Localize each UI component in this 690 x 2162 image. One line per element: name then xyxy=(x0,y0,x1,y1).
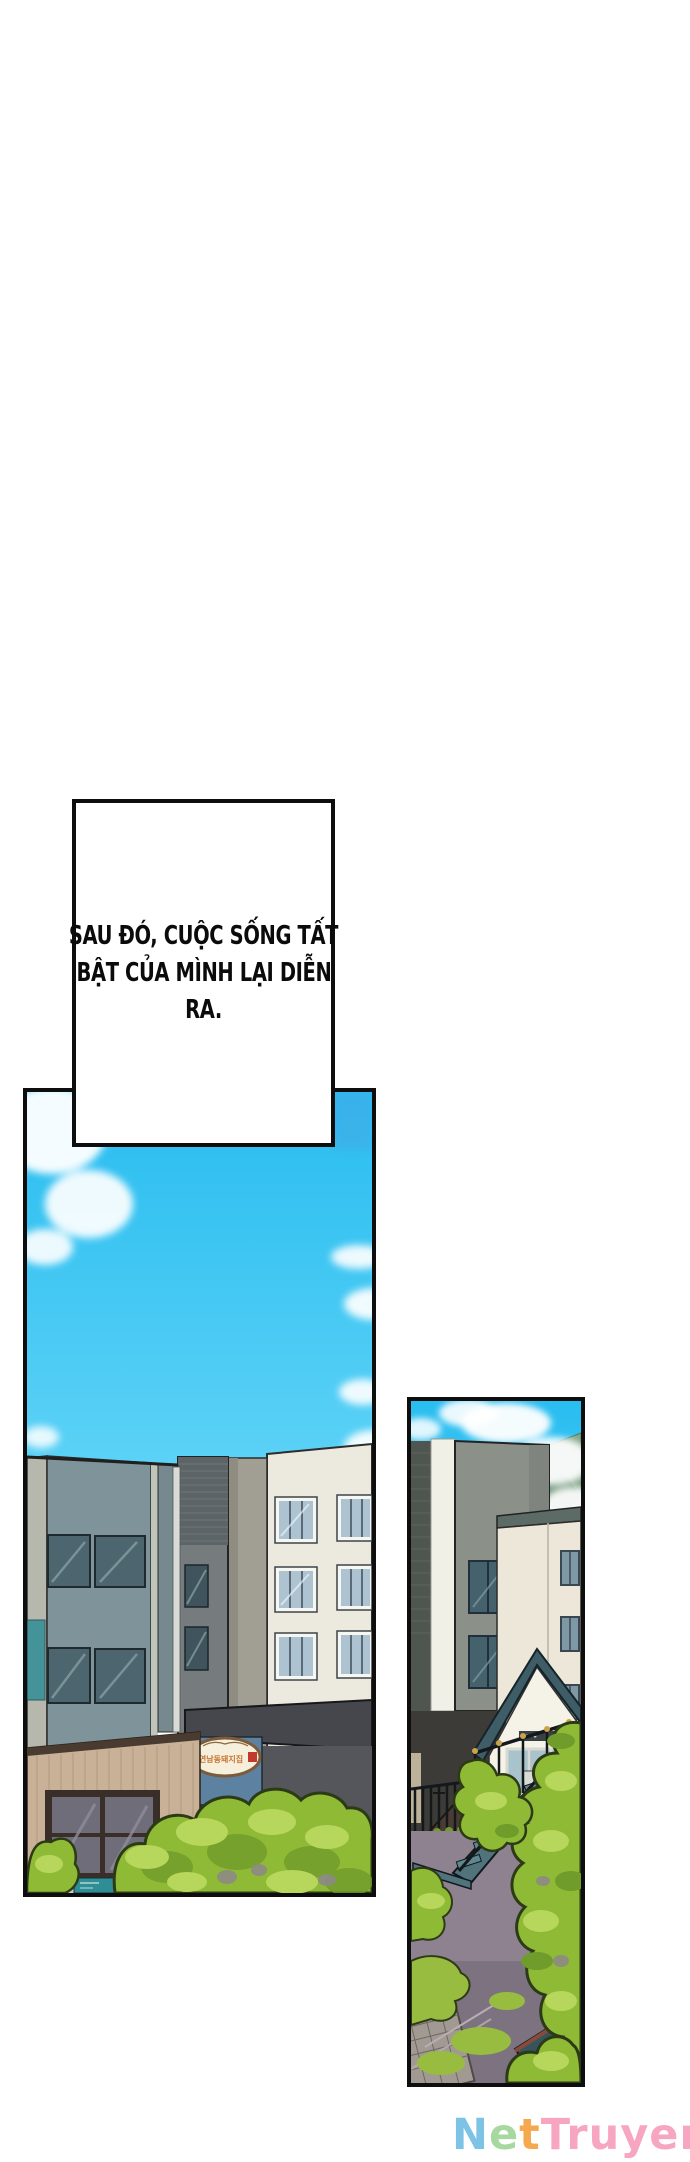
narration-line-3: RA. xyxy=(185,992,222,1029)
watermark-letter: e xyxy=(489,2110,519,2160)
watermark-letter: T xyxy=(541,2110,567,2160)
nettruyen-watermark: NetTruyen xyxy=(452,2110,690,2160)
watermark-letter: r xyxy=(566,2110,588,2160)
panel-alley-stairs xyxy=(407,1397,585,2087)
watermark-letter: n xyxy=(679,2110,690,2160)
panel-street-buildings: 연남동돼지집 xyxy=(23,1088,376,1897)
watermark-letter: t xyxy=(519,2110,541,2160)
narration-line-1: SAU ĐÓ, CUỘC SỐNG TẤT xyxy=(69,918,338,955)
comic-page: SAU ĐÓ, CUỘC SỐNG TẤT BẬT CỦA MÌNH LẠI D… xyxy=(0,0,690,2162)
shop-sign-text: 연남동돼지집 xyxy=(199,1754,243,1764)
watermark-letter: e xyxy=(649,2110,679,2160)
narration-line-2: BẬT CỦA MÌNH LẠI DIỄN xyxy=(76,955,331,992)
watermark-letter: y xyxy=(620,2110,649,2160)
watermark-letter: u xyxy=(589,2110,621,2160)
narration-box: SAU ĐÓ, CUỘC SỐNG TẤT BẬT CỦA MÌNH LẠI D… xyxy=(72,799,335,1147)
watermark-letter: N xyxy=(452,2110,489,2160)
building-tower xyxy=(178,1457,228,1737)
